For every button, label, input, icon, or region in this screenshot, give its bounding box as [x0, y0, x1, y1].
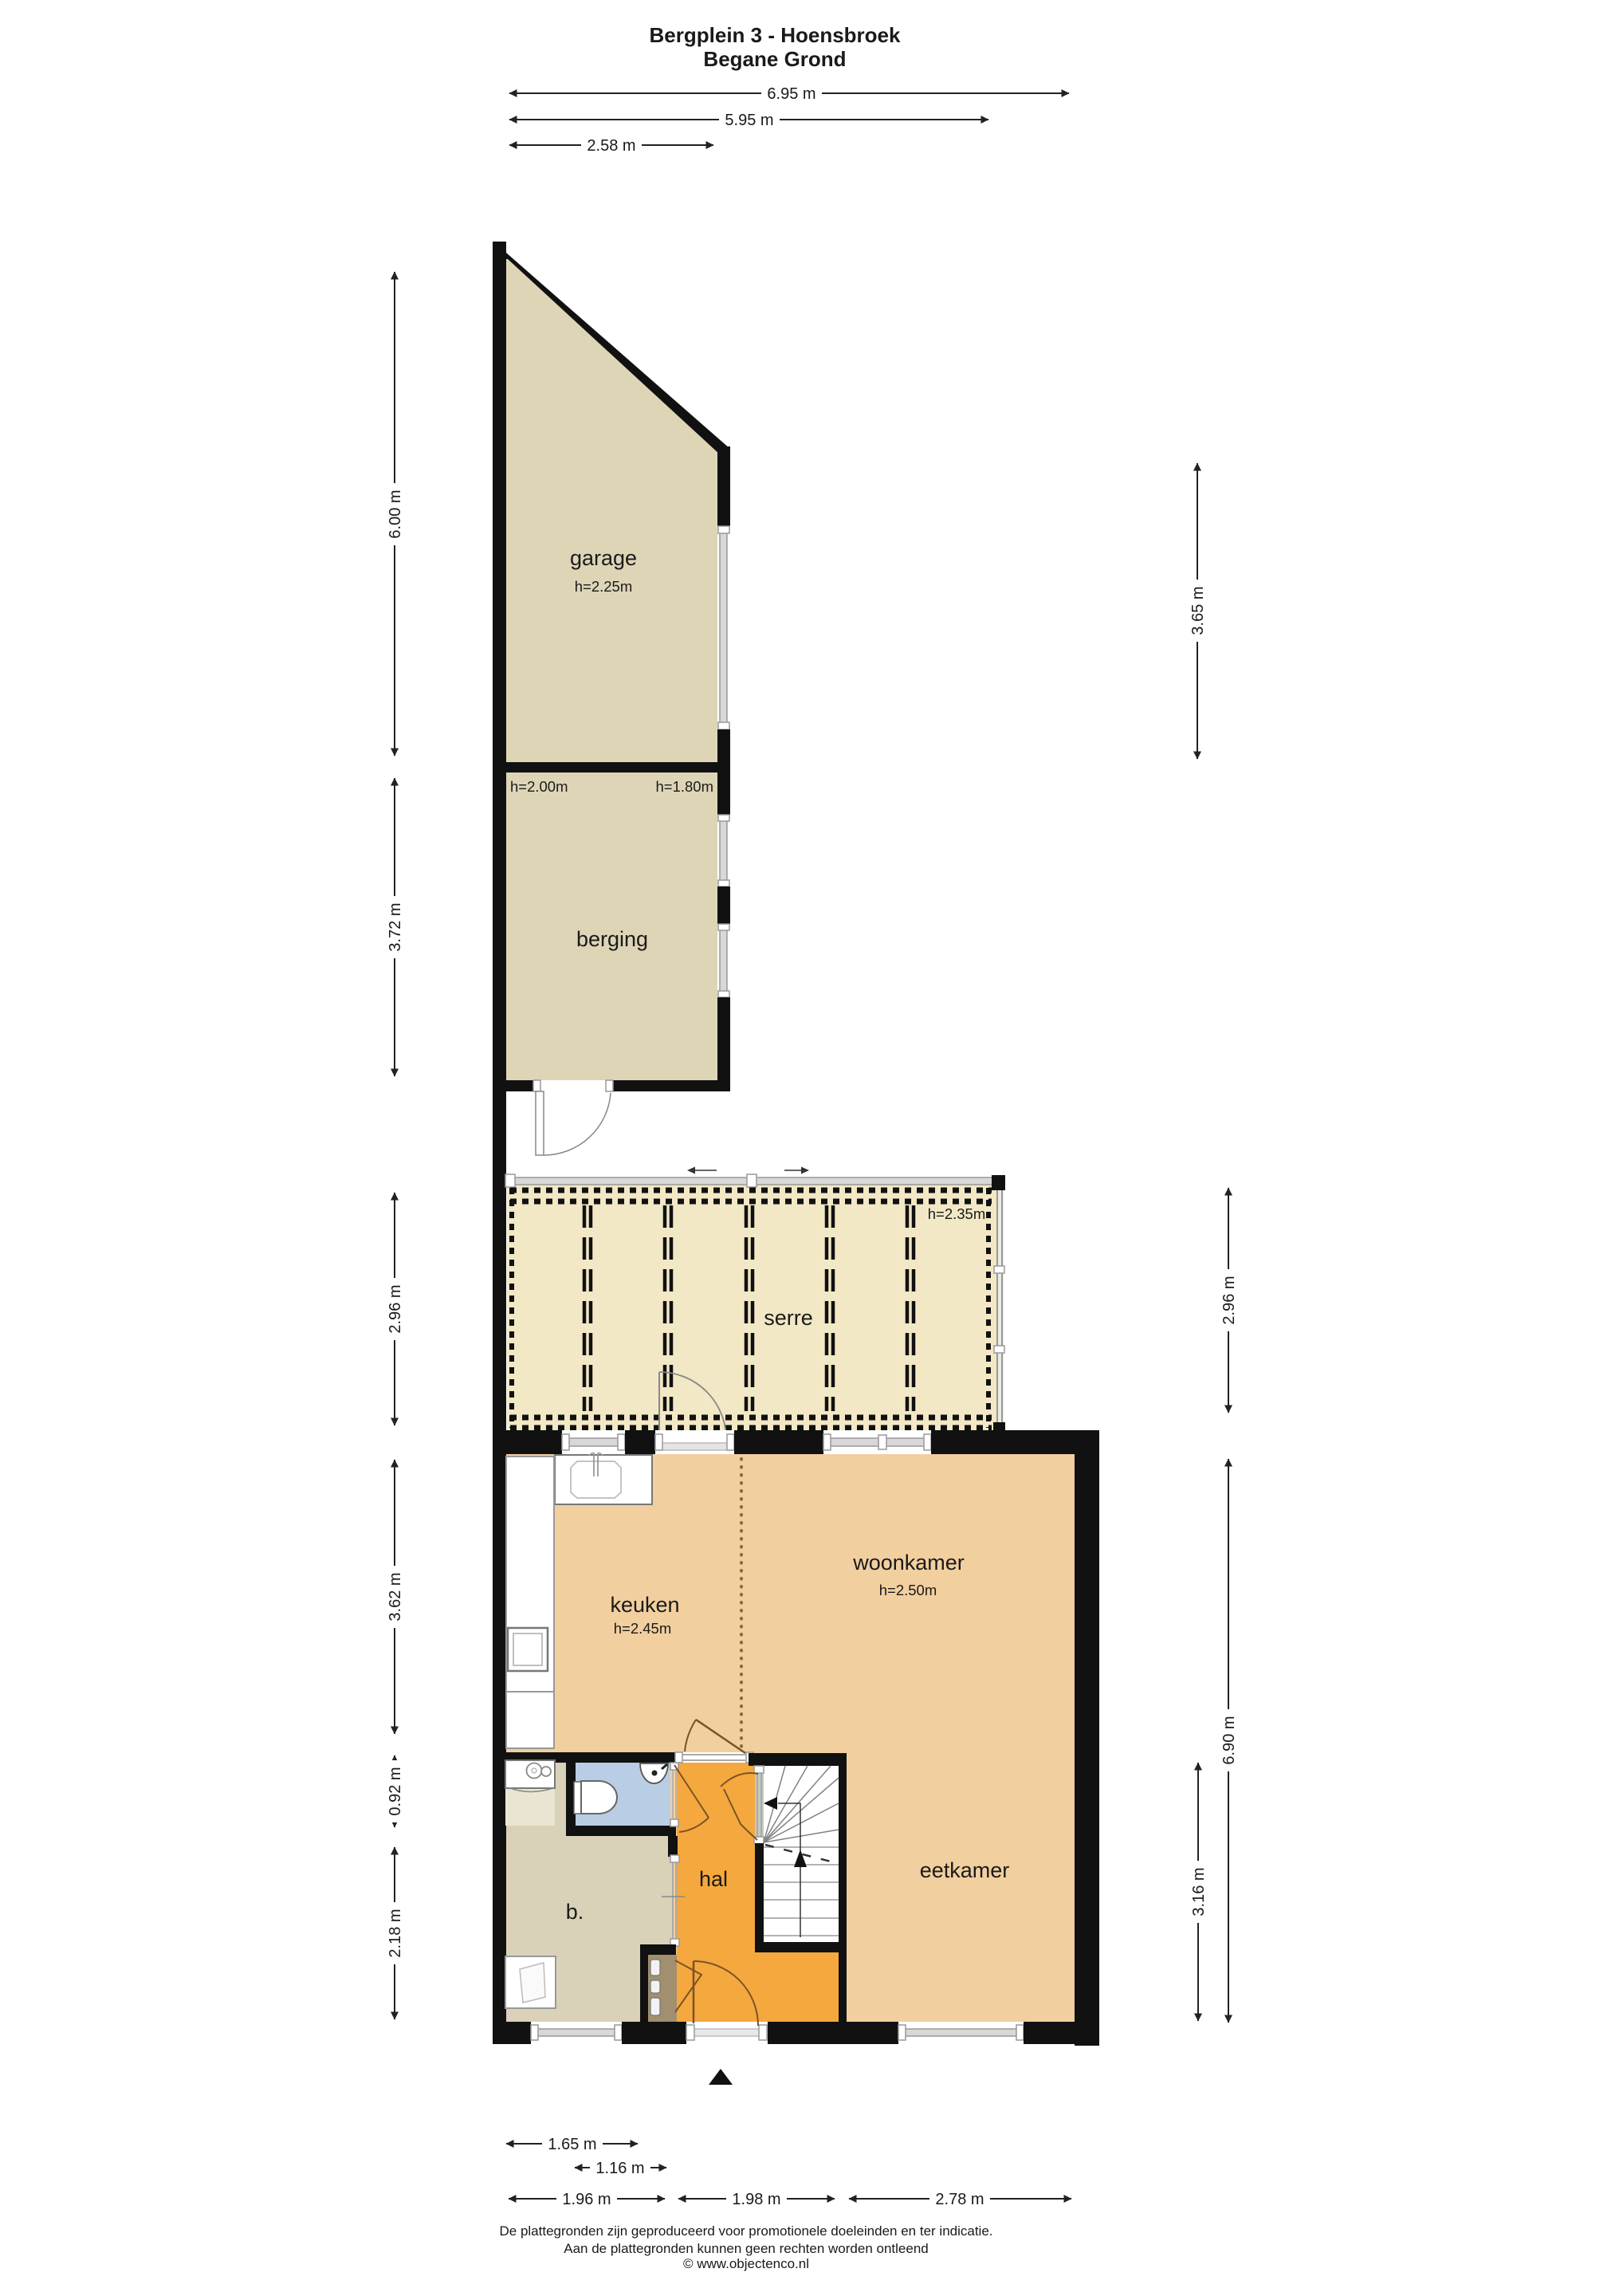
svg-text:3.72 m: 3.72 m — [387, 902, 404, 951]
svg-text:3.62 m: 3.62 m — [387, 1572, 404, 1621]
svg-text:Bergplein 3 - Hoensbroek: Bergplein 3 - Hoensbroek — [650, 23, 901, 47]
svg-text:1.98 m: 1.98 m — [732, 2191, 780, 2208]
svg-text:1.65 m: 1.65 m — [548, 2136, 596, 2153]
svg-text:Begane Grond: Begane Grond — [703, 47, 846, 71]
svg-text:serre: serre — [764, 1306, 813, 1330]
svg-text:6.90 m: 6.90 m — [1220, 1716, 1238, 1764]
svg-text:3.16 m: 3.16 m — [1190, 1867, 1208, 1916]
svg-text:h=2.45m: h=2.45m — [614, 1620, 672, 1637]
svg-text:berging: berging — [576, 927, 648, 951]
svg-text:2.18 m: 2.18 m — [387, 1909, 404, 1957]
svg-text:keuken: keuken — [610, 1593, 679, 1617]
svg-text:woonkamer: woonkamer — [852, 1551, 965, 1575]
svg-text:6.00 m: 6.00 m — [387, 489, 404, 538]
svg-text:garage: garage — [570, 546, 637, 570]
svg-text:3.65 m: 3.65 m — [1189, 586, 1207, 635]
svg-text:0.92 m: 0.92 m — [387, 1767, 404, 1815]
svg-text:De plattegronden zijn geproduc: De plattegronden zijn geproduceerd voor … — [499, 2223, 992, 2239]
svg-text:2.96 m: 2.96 m — [1220, 1276, 1238, 1324]
svg-text:2.78 m: 2.78 m — [935, 2191, 984, 2208]
svg-text:2.58 m: 2.58 m — [587, 137, 635, 155]
svg-text:h=2.35m: h=2.35m — [928, 1205, 986, 1222]
svg-text:b.: b. — [566, 1900, 584, 1924]
svg-text:2.96 m: 2.96 m — [387, 1284, 404, 1333]
svg-text:eetkamer: eetkamer — [920, 1858, 1010, 1882]
svg-text:h=2.00m: h=2.00m — [510, 778, 568, 795]
svg-text:Aan de plattegronden kunnen ge: Aan de plattegronden kunnen geen rechten… — [564, 2241, 928, 2256]
svg-text:6.95 m: 6.95 m — [767, 85, 815, 103]
svg-text:© www.objectenco.nl: © www.objectenco.nl — [683, 2256, 809, 2271]
svg-text:h=1.80m: h=1.80m — [655, 778, 713, 795]
svg-text:hal: hal — [699, 1867, 728, 1891]
svg-text:5.95 m: 5.95 m — [725, 112, 773, 129]
svg-text:1.96 m: 1.96 m — [562, 2191, 611, 2208]
svg-text:1.16 m: 1.16 m — [595, 2160, 644, 2177]
svg-text:h=2.25m: h=2.25m — [575, 578, 633, 595]
svg-text:h=2.50m: h=2.50m — [879, 1582, 937, 1598]
